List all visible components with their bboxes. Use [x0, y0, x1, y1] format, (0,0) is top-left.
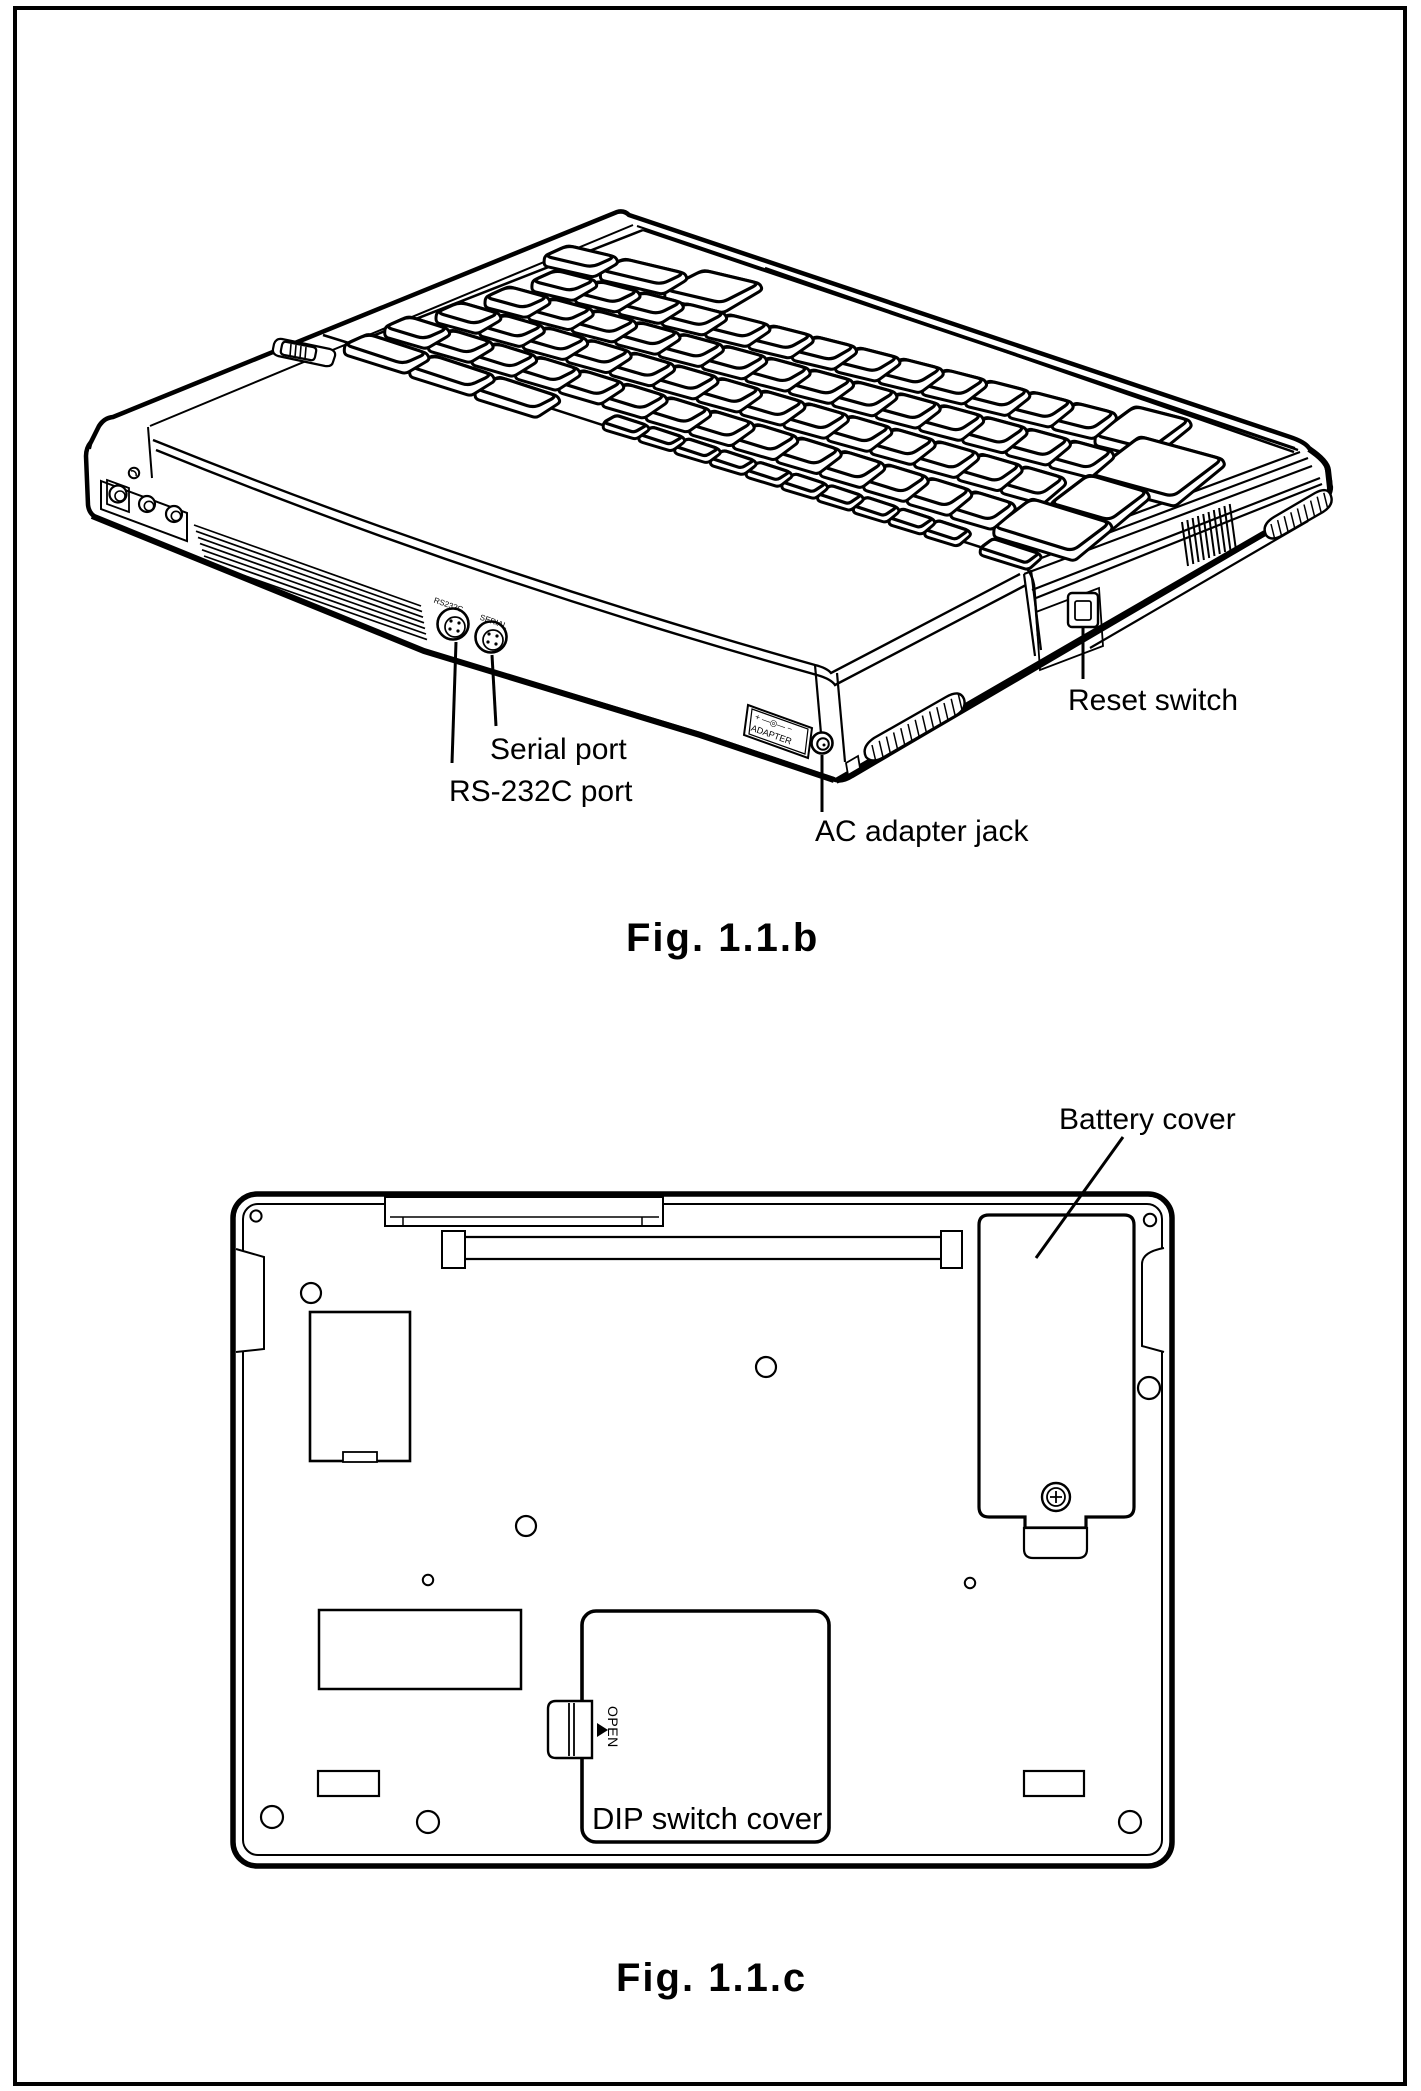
svg-text:OPEN: OPEN: [605, 1706, 621, 1748]
svg-text:Fig. 1.1.b: Fig. 1.1.b: [626, 916, 819, 960]
svg-text:Battery cover: Battery cover: [1059, 1103, 1236, 1136]
svg-text:DIP switch cover: DIP switch cover: [592, 1801, 822, 1836]
svg-text:Reset switch: Reset switch: [1068, 684, 1238, 717]
svg-text:AC adapter jack: AC adapter jack: [815, 815, 1029, 848]
svg-text:RS-232C port: RS-232C port: [449, 775, 633, 808]
svg-text:Fig. 1.1.c: Fig. 1.1.c: [616, 1956, 807, 2000]
svg-text:Serial port: Serial port: [490, 733, 627, 766]
